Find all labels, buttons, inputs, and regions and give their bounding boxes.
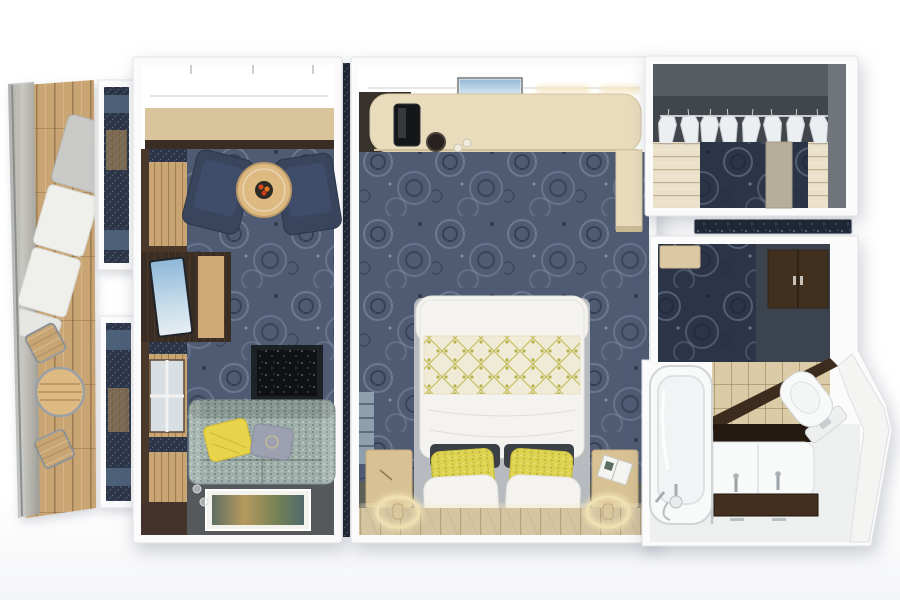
grinder-jar bbox=[427, 133, 445, 151]
desk-return bbox=[616, 150, 642, 232]
window-base bbox=[141, 502, 187, 535]
floorplan-canvas bbox=[0, 0, 900, 600]
gray-pillow bbox=[250, 423, 295, 461]
fireplace bbox=[251, 345, 323, 401]
hall-bench bbox=[660, 246, 700, 268]
floor-artwork bbox=[206, 490, 310, 530]
sofa-arm bbox=[189, 400, 202, 484]
sofa-arm bbox=[322, 400, 335, 484]
closet-right-wall bbox=[828, 64, 846, 208]
ceiling-tick bbox=[252, 65, 254, 74]
ceiling-light bbox=[536, 86, 590, 93]
curtain-weave bbox=[149, 149, 187, 162]
window-cushion bbox=[106, 330, 131, 350]
bedroom bbox=[351, 57, 657, 543]
dark-counter bbox=[714, 494, 818, 516]
counter-trim bbox=[772, 518, 786, 521]
window-bay-lower bbox=[100, 316, 137, 508]
wardrobe-handle bbox=[793, 276, 796, 285]
curtain-weave bbox=[149, 341, 187, 354]
floorplan-svg bbox=[0, 0, 900, 600]
divider-texture bbox=[343, 63, 350, 537]
coffee-machine bbox=[394, 104, 420, 146]
window-cushion bbox=[104, 230, 129, 250]
cabinet-panel bbox=[198, 256, 224, 338]
sofa bbox=[189, 400, 335, 484]
cup bbox=[454, 144, 462, 152]
door-mat-sparkle bbox=[694, 219, 852, 234]
hall-and-bathroom bbox=[642, 236, 892, 546]
wardrobe-cabinet bbox=[768, 250, 828, 308]
walk-in-closet bbox=[645, 56, 858, 216]
king-bed bbox=[414, 296, 590, 522]
vanity-backsplash bbox=[712, 424, 816, 442]
bay-slat-texture bbox=[108, 388, 129, 432]
top-counter bbox=[145, 108, 334, 140]
ceiling-tick bbox=[312, 65, 314, 74]
window-bay-upper bbox=[98, 80, 135, 270]
tv-cabinet bbox=[141, 252, 231, 342]
counter-trim bbox=[730, 518, 744, 521]
closet-back-wall bbox=[653, 64, 846, 96]
window-bays bbox=[98, 80, 137, 508]
floral-pattern bbox=[424, 336, 580, 394]
fruit-bowl bbox=[255, 181, 273, 199]
closet-column bbox=[766, 142, 792, 208]
sofa-back bbox=[189, 400, 335, 418]
ceiling-light bbox=[600, 86, 640, 93]
fruit bbox=[258, 184, 263, 189]
living-room bbox=[133, 57, 343, 543]
wardrobe-handle bbox=[800, 276, 803, 285]
fruit bbox=[261, 190, 266, 195]
machine-highlight bbox=[398, 108, 406, 138]
curtain-weave bbox=[149, 437, 187, 452]
bay-slat-texture bbox=[106, 130, 127, 170]
window-cushion bbox=[106, 468, 131, 486]
double-vanity bbox=[702, 442, 818, 521]
counter-edge bbox=[145, 140, 334, 149]
ceiling-tick bbox=[190, 65, 192, 74]
vanity-desk bbox=[370, 94, 641, 152]
window-cushion bbox=[104, 95, 129, 113]
coffee-table bbox=[237, 163, 291, 217]
bathtub bbox=[650, 366, 712, 524]
cup bbox=[463, 139, 471, 147]
